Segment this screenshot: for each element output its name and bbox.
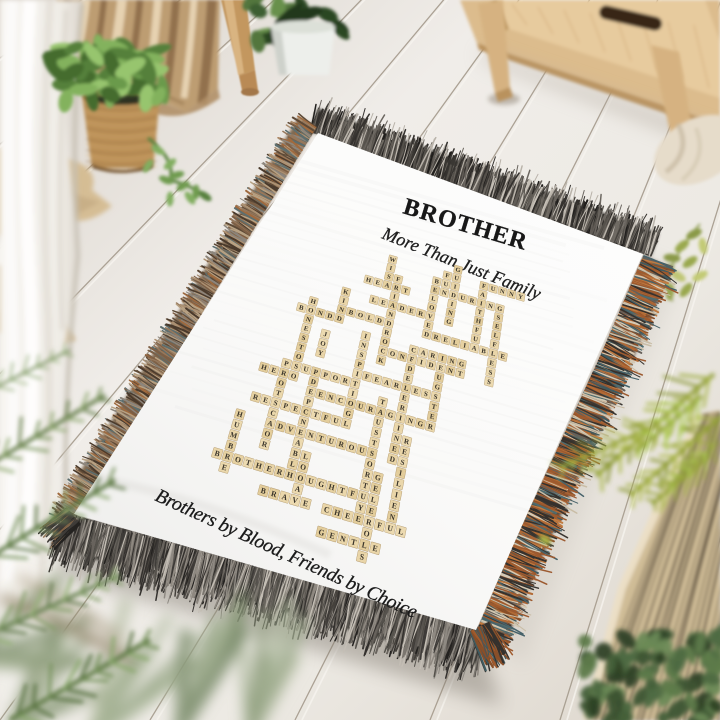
svg-text:N: N [447,367,453,375]
svg-text:U: U [436,374,442,382]
svg-text:G: G [446,318,452,326]
svg-text:O: O [429,304,435,312]
svg-text:H: H [475,317,481,325]
svg-text:F: F [492,341,497,349]
svg-text:G: G [497,305,503,313]
svg-text:D: D [428,362,434,370]
